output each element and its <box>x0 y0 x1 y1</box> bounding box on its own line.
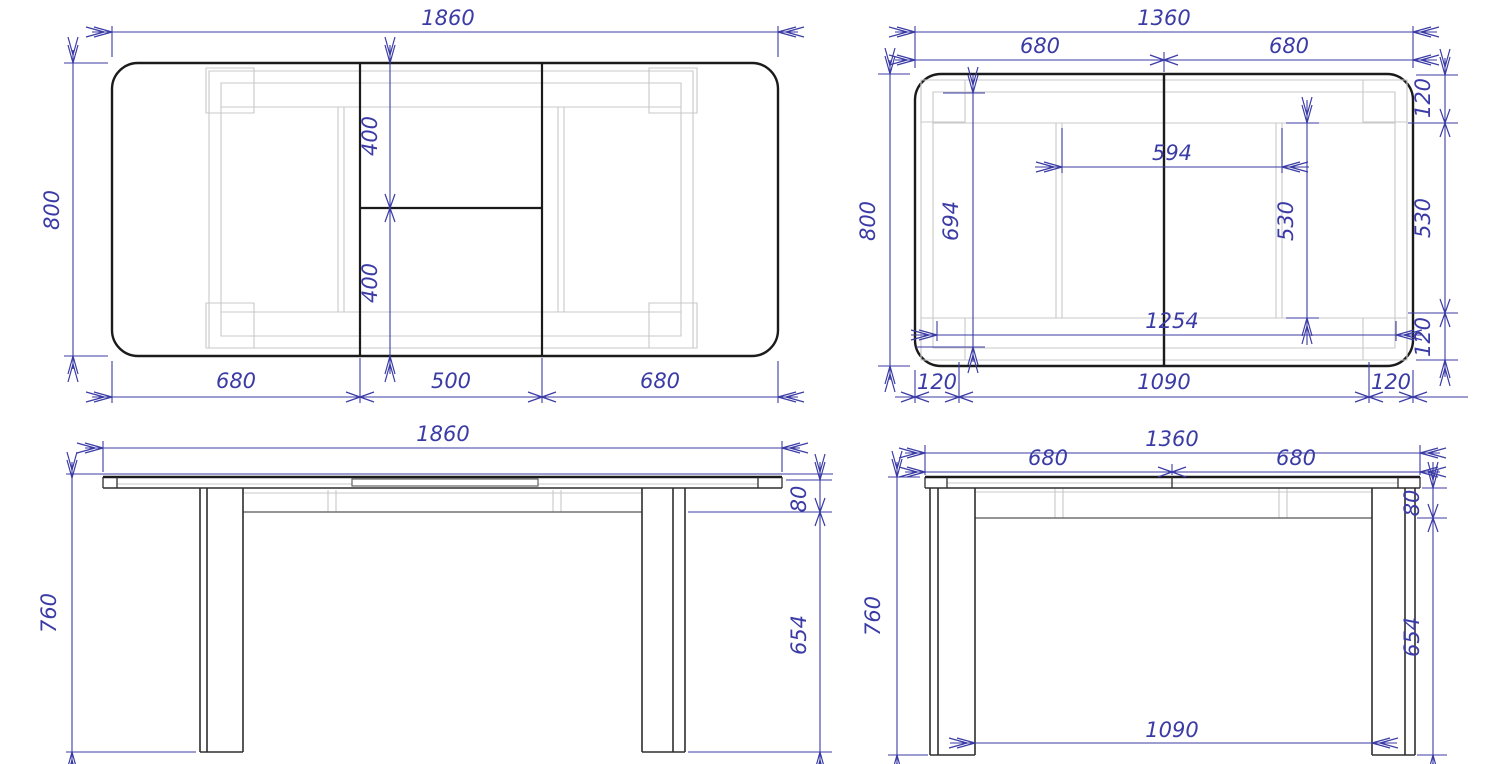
dim-total-width: 1360 <box>1137 6 1190 30</box>
dim-edge-bottom: 120 <box>1411 317 1435 357</box>
dim-right-half: 680 <box>1276 446 1316 470</box>
technical-drawing-sheet: 1860 800 400 400 680 500 680 1360 680 68… <box>0 0 1500 764</box>
dim-height: 760 <box>861 596 885 636</box>
table-drawing-canvas: 1860 800 400 400 680 500 680 1360 680 68… <box>0 0 1500 764</box>
dim-legs-span: 1090 <box>1137 370 1190 394</box>
view-front-extended: 1860 760 80 654 <box>37 422 833 764</box>
dim-insert-bottom: 400 <box>358 263 382 303</box>
dim-leg-height: 654 <box>1400 617 1424 657</box>
dim-runner-gap: 594 <box>1152 141 1192 165</box>
dim-total-width: 1360 <box>1145 427 1198 451</box>
dim-insert-width: 500 <box>431 369 471 393</box>
dim-legs-span: 1090 <box>1145 718 1198 742</box>
dim-frame-length: 1254 <box>1145 309 1198 333</box>
dim-frame-inner-depth: 694 <box>939 201 963 241</box>
dim-right-section: 680 <box>640 369 680 393</box>
dim-left-half: 680 <box>1028 446 1068 470</box>
dim-insert-top: 400 <box>358 116 382 156</box>
dim-left-half: 680 <box>1020 34 1060 58</box>
dim-leg-height: 654 <box>787 615 811 655</box>
dim-edge-top: 120 <box>1411 78 1435 118</box>
arrowheads <box>67 443 825 764</box>
dim-depth: 800 <box>40 190 64 230</box>
dim-leg-inset-right: 120 <box>1371 370 1411 394</box>
view-top-closed: 1360 680 680 800 694 594 530 1254 120 53… <box>856 6 1468 403</box>
dim-right-half: 680 <box>1269 34 1309 58</box>
dim-apron-height: 80 <box>787 486 811 513</box>
legs <box>930 488 1415 755</box>
dim-total-width: 1860 <box>416 422 469 446</box>
view-top-extended: 1860 800 400 400 680 500 680 <box>40 6 804 403</box>
dim-height: 760 <box>37 593 61 633</box>
dim-total-width: 1860 <box>421 6 474 30</box>
dim-leg-inset-left: 120 <box>917 370 957 394</box>
dim-left-section: 680 <box>216 369 256 393</box>
dimension-lines <box>72 448 820 764</box>
leaf-inset <box>352 479 538 486</box>
dim-side-panel: 530 <box>1411 198 1435 238</box>
dim-runner-length: 530 <box>1274 201 1298 241</box>
legs <box>200 488 685 752</box>
view-front-closed: 1360 680 680 760 80 654 1090 <box>861 427 1447 764</box>
dim-depth: 800 <box>856 201 880 241</box>
dim-apron-height: 80 <box>1400 490 1424 517</box>
